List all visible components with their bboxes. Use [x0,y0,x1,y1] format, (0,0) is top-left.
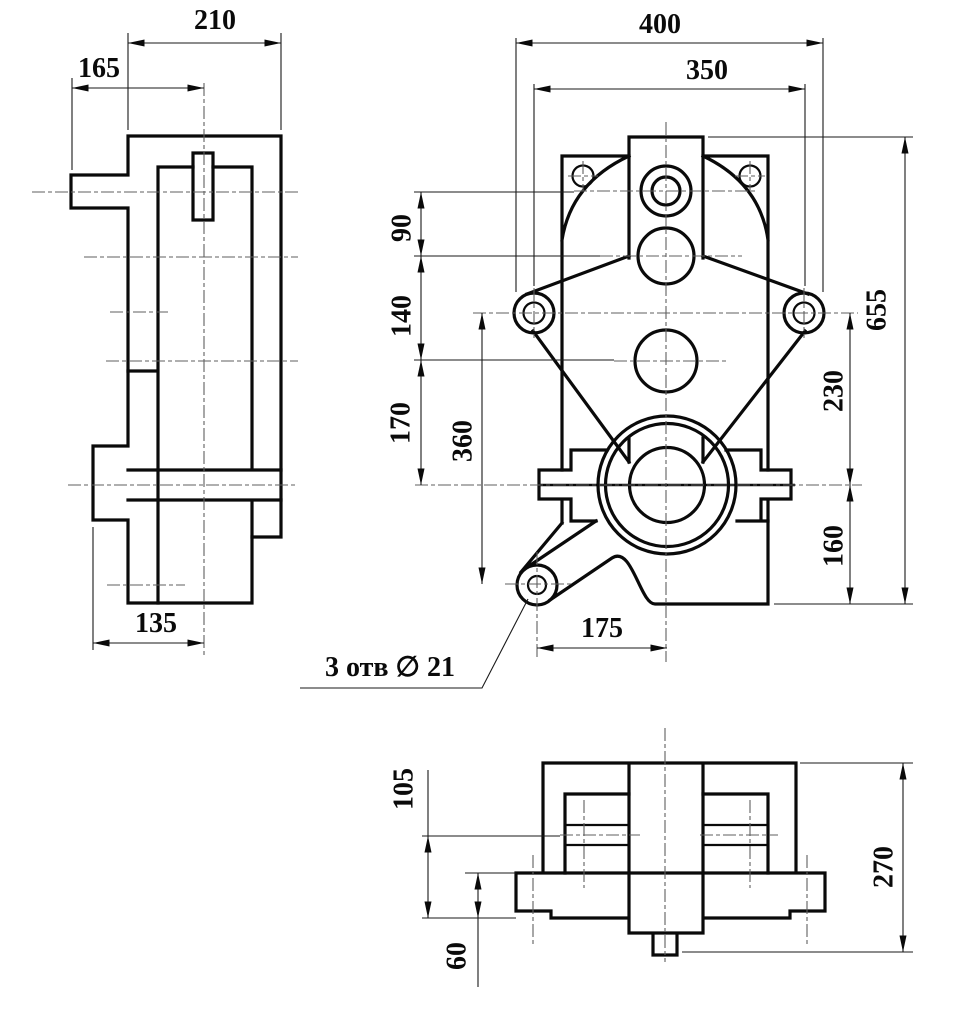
side-view-key-slot [193,153,213,220]
dim-210-label: 210 [194,5,236,36]
dim-165-label: 165 [78,53,120,84]
front-view-webs [527,256,808,462]
holes-note-label: 3 отв ∅ 21 [325,652,455,683]
side-view-outline [71,136,281,603]
dim-140-label: 140 [387,295,418,337]
dim-135-label: 135 [135,608,177,639]
dim-400-label: 400 [639,9,681,40]
extension-line [72,33,281,650]
dim-230-label: 230 [819,370,850,412]
dim-90-label: 90 [387,214,418,242]
technical-drawing: 210 165 135 [0,0,977,1024]
bottom-view-dimensions: 105 60 270 [389,763,914,987]
dim-175-label: 175 [581,613,623,644]
bottom-view-outline [516,763,825,955]
extension-line [414,38,913,604]
dim-360-label: 360 [448,420,479,462]
dim-105-label: 105 [389,768,420,810]
dim-350-label: 350 [686,55,728,86]
dim-170-label: 170 [386,402,417,444]
front-view-dimensions: 400 350 90 140 170 360 655 230 160 175 3… [300,9,913,688]
dim-60-label: 60 [442,942,473,970]
side-view-dimensions: 210 165 135 [72,5,281,650]
dim-270-label: 270 [869,846,900,888]
dim-655-label: 655 [862,289,893,331]
drawing-sheet: 210 165 135 [0,0,977,1024]
bottom-view [516,728,825,962]
bottom-view-inner [565,794,768,873]
dim-160-label: 160 [819,525,850,567]
front-view-bottom [550,521,768,604]
